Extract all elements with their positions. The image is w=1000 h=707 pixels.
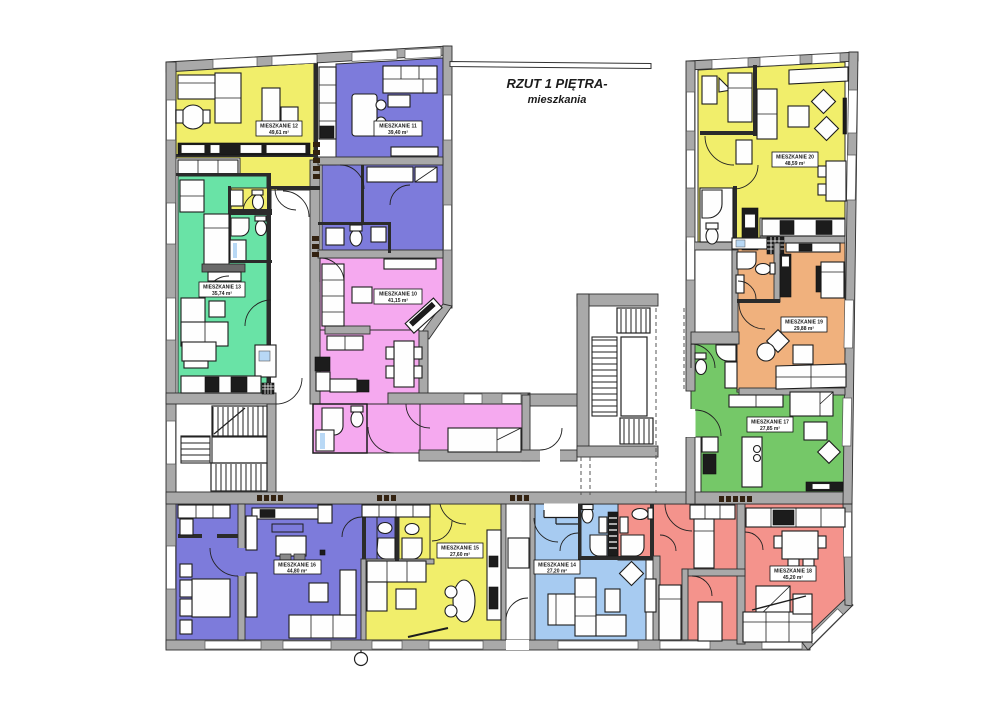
svg-text:MIESZKANIE 19: MIESZKANIE 19 [785,320,823,326]
svg-text:MIESZKANIE 11: MIESZKANIE 11 [379,124,417,130]
svg-text:MIESZKANIE 15: MIESZKANIE 15 [441,546,479,552]
svg-text:27,20 m²: 27,20 m² [547,569,567,575]
svg-text:29,88 m²: 29,88 m² [794,326,814,332]
svg-text:45,20 m²: 45,20 m² [783,575,803,581]
svg-text:27,85 m²: 27,85 m² [760,426,780,432]
svg-text:MIESZKANIE 13: MIESZKANIE 13 [203,285,241,291]
svg-text:mieszkania: mieszkania [528,94,587,106]
svg-text:MIESZKANIE 10: MIESZKANIE 10 [379,292,417,298]
svg-text:MIESZKANIE 20: MIESZKANIE 20 [776,155,814,161]
svg-text:39,40 m²: 39,40 m² [388,130,408,136]
svg-text:44,80 m²: 44,80 m² [287,569,307,575]
svg-text:MIESZKANIE 12: MIESZKANIE 12 [260,124,298,130]
svg-text:MIESZKANIE 18: MIESZKANIE 18 [774,569,812,575]
svg-text:35,74 m²: 35,74 m² [212,291,232,297]
svg-text:RZUT 1 PIĘTRA-: RZUT 1 PIĘTRA- [506,76,607,91]
svg-text:49,61 m²: 49,61 m² [269,130,289,136]
svg-text:27,60 m²: 27,60 m² [450,552,470,558]
svg-text:48,59 m²: 48,59 m² [785,161,805,167]
svg-text:41,15 m²: 41,15 m² [388,298,408,304]
svg-text:MIESZKANIE 17: MIESZKANIE 17 [751,420,789,426]
